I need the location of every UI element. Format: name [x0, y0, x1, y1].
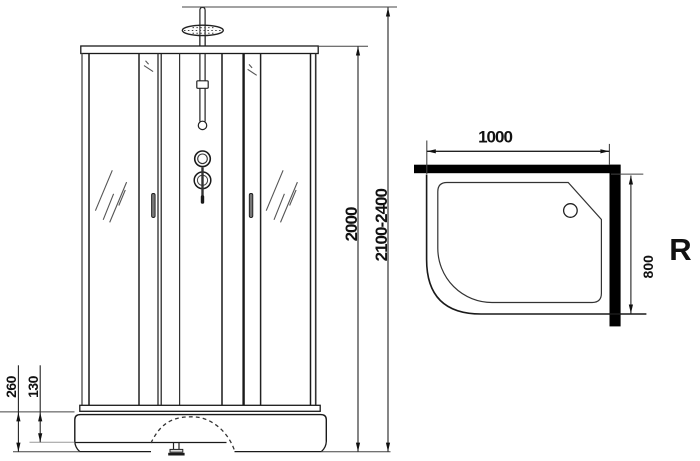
svg-text:2000: 2000: [342, 207, 361, 241]
svg-text:R: R: [669, 232, 691, 267]
svg-text:1000: 1000: [478, 128, 512, 147]
svg-text:800: 800: [640, 255, 656, 279]
svg-text:130: 130: [25, 375, 41, 398]
svg-text:2100-2400: 2100-2400: [372, 189, 391, 262]
svg-text:260: 260: [3, 375, 19, 398]
